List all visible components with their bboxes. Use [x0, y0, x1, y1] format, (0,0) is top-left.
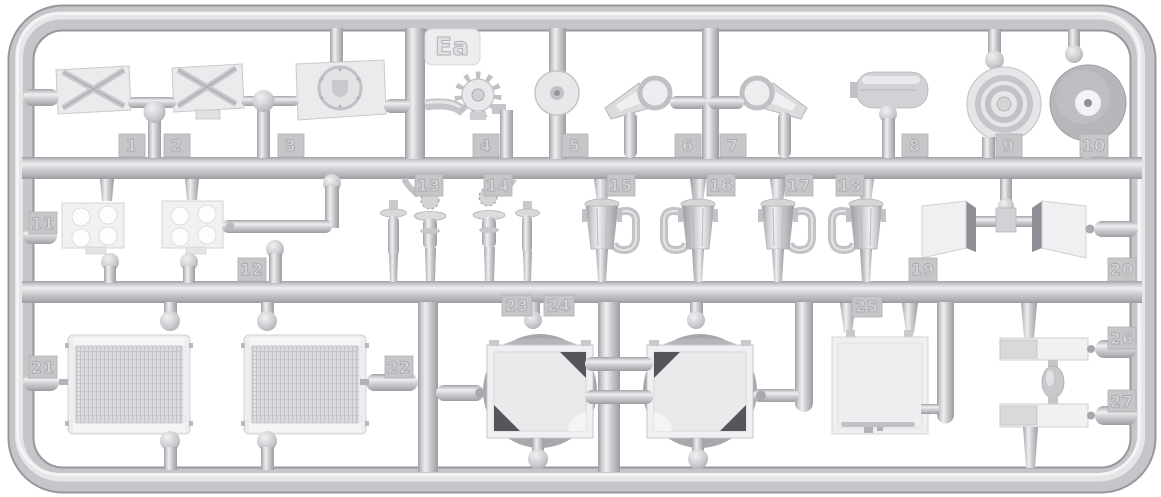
- svg-text:21: 21: [31, 358, 55, 377]
- svg-text:13: 13: [417, 176, 441, 195]
- part-3-hatch-panel: [296, 28, 386, 120]
- svg-text:1: 1: [126, 136, 138, 155]
- svg-text:8: 8: [909, 136, 921, 155]
- part-tag-21: 21: [29, 356, 57, 378]
- svg-text:16: 16: [709, 176, 733, 195]
- part-22-radiator: [241, 302, 418, 470]
- part-tag-2: 2: [164, 134, 190, 157]
- part-tag-6: 6: [675, 134, 701, 157]
- part-tag-13: 13: [415, 174, 443, 196]
- part-tag-5: 5: [562, 134, 588, 157]
- part-tag-14: 14: [484, 174, 512, 196]
- part-tag-27: 27: [1108, 390, 1136, 412]
- svg-text:12: 12: [240, 260, 264, 279]
- sprue-photo: Ea 1 2 3 4 5 6 7 8 9 10 11 12 13 14 15 1…: [0, 0, 1161, 497]
- part-25-access-panel: [832, 303, 939, 434]
- svg-text:2: 2: [171, 136, 183, 155]
- part-tag-1: 1: [119, 134, 145, 157]
- part-tag-25: 25: [852, 296, 882, 317]
- svg-text:26: 26: [1110, 329, 1134, 348]
- svg-text:9: 9: [1003, 136, 1015, 155]
- part-tag-10: 10: [1080, 134, 1108, 157]
- svg-text:10: 10: [1082, 136, 1106, 155]
- part-tag-19: 19: [909, 258, 937, 281]
- svg-text:6: 6: [682, 136, 694, 155]
- part-tag-23: 23: [502, 295, 532, 316]
- part-tag-18: 18: [836, 174, 864, 196]
- part-tag-26: 26: [1108, 327, 1136, 349]
- left-rail-stub-row1: [23, 89, 59, 106]
- part-tag-8: 8: [902, 134, 928, 157]
- part-21-radiator: [23, 302, 193, 470]
- part-tag-20: 20: [1108, 258, 1136, 281]
- vertical-runner-1: [405, 28, 425, 159]
- part-tag-4: 4: [473, 134, 499, 157]
- svg-text:20: 20: [1110, 260, 1134, 279]
- part-tag-12: 12: [238, 258, 266, 281]
- part-tag-7: 7: [720, 134, 746, 157]
- part-tag-11: 11: [29, 212, 57, 234]
- svg-text:15: 15: [609, 176, 633, 195]
- part-tag-24: 24: [544, 295, 574, 316]
- part-tag-17: 17: [785, 174, 813, 196]
- svg-text:11: 11: [31, 214, 55, 233]
- svg-text:27: 27: [1110, 392, 1134, 411]
- part-23-round-tank: [483, 302, 597, 469]
- svg-text:24: 24: [547, 296, 571, 315]
- svg-text:23: 23: [505, 296, 529, 315]
- runner-row-1: [22, 157, 1142, 179]
- vertical-runner-4: [418, 302, 438, 472]
- part-2-hatch-plate: [172, 64, 244, 119]
- sprue-code-tag: Ea: [425, 29, 480, 65]
- svg-text:5: 5: [569, 136, 581, 155]
- part-24-round-tank: [643, 302, 757, 469]
- part-5-disc: [535, 71, 579, 115]
- part-tag-15: 15: [607, 174, 635, 196]
- svg-text:14: 14: [486, 176, 510, 195]
- vertical-runner-3: [702, 28, 719, 159]
- part-1-hatch-plate: [56, 66, 131, 114]
- sprue-code-text: Ea: [435, 32, 469, 61]
- svg-text:18: 18: [838, 176, 862, 195]
- svg-text:4: 4: [480, 136, 492, 155]
- part-27-bracket-bar: [1000, 404, 1137, 468]
- svg-text:17: 17: [787, 176, 811, 195]
- svg-text:7: 7: [727, 136, 739, 155]
- svg-text:25: 25: [855, 297, 879, 316]
- svg-text:19: 19: [911, 260, 935, 279]
- svg-text:3: 3: [285, 136, 297, 155]
- part-tag-9: 9: [996, 134, 1022, 157]
- vertical-runner-center-tanks: [598, 302, 620, 472]
- part-tag-22: 22: [385, 356, 413, 378]
- part-tag-16: 16: [707, 174, 735, 196]
- svg-text:22: 22: [387, 358, 411, 377]
- vertical-stub-panel-right: [937, 302, 954, 424]
- sprue-canvas: Ea 1 2 3 4 5 6 7 8 9 10 11 12 13 14 15 1…: [0, 0, 1161, 497]
- part-19-20-stowage-boxes: [922, 179, 1138, 258]
- bar-middle-lug: [1042, 360, 1064, 404]
- part-tag-3: 3: [278, 134, 304, 157]
- runner-row-2: [22, 281, 1142, 303]
